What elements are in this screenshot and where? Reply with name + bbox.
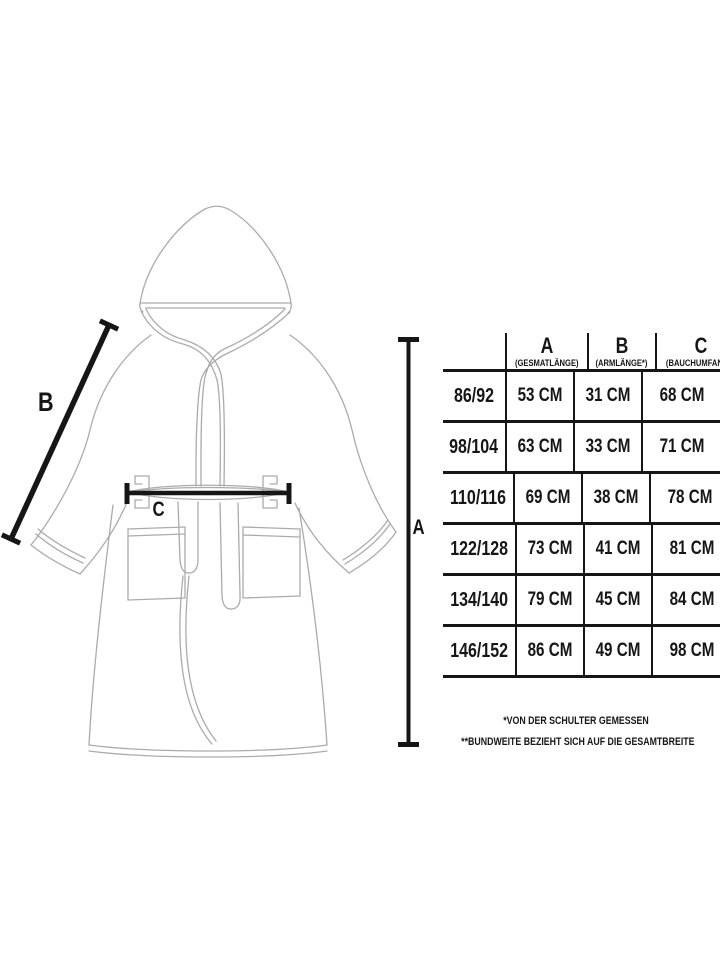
lapel-right-inner: [201, 309, 285, 486]
value-c-text: 68 CM: [659, 385, 704, 407]
size-text: 122/128: [450, 538, 508, 561]
value-a-cell: 86 CM: [517, 627, 585, 675]
footnote-1: *VON DER SCHULTER GEMESSEN: [432, 711, 720, 732]
value-a-text: 73 CM: [528, 538, 573, 560]
value-a-cell: 73 CM: [517, 525, 585, 573]
value-c-text: 71 CM: [659, 436, 704, 458]
value-b-text: 31 CM: [586, 385, 631, 407]
value-c-text: 78 CM: [667, 487, 712, 509]
pocket-left: [128, 527, 185, 600]
column-letter-b: B: [615, 335, 628, 357]
size-cell: 146/152: [443, 627, 517, 675]
dimension-line-b: [2, 321, 118, 543]
size-table: A (GESMATLÄNGE) B (ARMLÄNGE*) C (BAUCHUM…: [443, 333, 720, 678]
sleeve-left-cuff1: [36, 534, 83, 563]
belt-end-right: [220, 503, 240, 609]
column-letter-a: A: [540, 335, 553, 357]
size-text: 134/140: [450, 589, 508, 612]
value-c-cell: 78 CM: [651, 474, 720, 522]
pocket-right: [243, 527, 300, 598]
value-a-cell: 63 CM: [507, 423, 575, 471]
size-column-header: [443, 333, 507, 369]
value-c-text: 98 CM: [669, 640, 714, 662]
value-c-cell: 71 CM: [643, 423, 720, 471]
lapel-right-outer: [196, 312, 290, 486]
hood-outline: [140, 206, 291, 303]
column-subtitle-b: (ARMLÄNGE*): [596, 359, 648, 369]
value-b-cell: 49 CM: [585, 627, 653, 675]
footnotes: *VON DER SCHULTER GEMESSEN **BUNDWEITE B…: [432, 711, 720, 753]
table-row: 86/92 53 CM 31 CM 68 CM: [443, 372, 720, 423]
body-right-edge: [299, 508, 327, 745]
sleeve-left-end: [31, 545, 80, 574]
hem-outer: [89, 751, 327, 757]
value-c-cell: 81 CM: [653, 525, 720, 573]
value-b-text: 41 CM: [596, 538, 641, 560]
value-b-cell: 45 CM: [585, 576, 653, 624]
value-b-cell: 41 CM: [585, 525, 653, 573]
column-header-b: B (ARMLÄNGE*): [589, 333, 657, 369]
dimension-label-c: C: [151, 499, 166, 520]
sleeve-right-cuff1: [345, 524, 390, 564]
table-row: 146/152 86 CM 49 CM 98 CM: [443, 627, 720, 678]
table-header-row: A (GESMATLÄNGE) B (ARMLÄNGE*) C (BAUCHUM…: [443, 333, 720, 372]
dimension-label-c-text: C: [153, 499, 165, 520]
lapel-left-inner: [146, 309, 224, 486]
column-subtitle-c: (BAUCHUMFANG**): [665, 359, 720, 369]
dimension-label-a-text: A: [413, 517, 425, 538]
footnote-2: **BUNDWEITE BEZIEHT SICH AUF DIE GESAMTB…: [432, 732, 720, 753]
column-header-a: A (GESMATLÄNGE): [507, 333, 589, 369]
dimension-label-b: B: [36, 389, 56, 416]
size-cell: 98/104: [443, 423, 507, 471]
table-row: 98/104 63 CM 33 CM 71 CM: [443, 423, 720, 474]
dimension-line-a: [398, 339, 419, 745]
value-b-cell: 31 CM: [575, 372, 643, 420]
size-cell: 122/128: [443, 525, 517, 573]
dimension-label-b-text: B: [38, 389, 54, 416]
value-a-text: 63 CM: [518, 436, 563, 458]
table-row: 122/128 73 CM 41 CM 81 CM: [443, 525, 720, 576]
value-b-text: 49 CM: [596, 640, 641, 662]
value-c-cell: 98 CM: [653, 627, 720, 675]
body-left-edge: [89, 505, 113, 745]
value-a-text: 53 CM: [518, 385, 563, 407]
value-a-text: 86 CM: [528, 640, 573, 662]
footnote-1-text: *VON DER SCHULTER GEMESSEN: [503, 711, 649, 732]
size-text: 110/116: [450, 487, 506, 510]
front-overlap-outer: [180, 576, 212, 744]
sleeve-left-under: [80, 500, 128, 574]
size-cell: 110/116: [443, 474, 515, 522]
belt-end-left: [178, 502, 198, 573]
footnote-2-text: **BUNDWEITE BEZIEHT SICH AUF DIE GESAMTB…: [461, 732, 694, 753]
column-header-c: C (BAUCHUMFANG**): [657, 333, 720, 369]
table-row: 110/116 69 CM 38 CM 78 CM: [443, 474, 720, 525]
column-letter-c: C: [695, 335, 708, 357]
size-text: 86/92: [454, 385, 494, 408]
lapel-left-outer: [141, 311, 220, 486]
value-b-cell: 33 CM: [575, 423, 643, 471]
hem-inner: [89, 745, 327, 751]
sleeve-left-cuff2: [38, 529, 85, 558]
value-a-cell: 79 CM: [517, 576, 585, 624]
value-a-text: 79 CM: [528, 589, 573, 611]
size-text: 146/152: [450, 640, 508, 663]
size-text: 98/104: [450, 436, 499, 459]
front-overlap-inner: [186, 576, 216, 741]
value-b-text: 45 CM: [596, 589, 641, 611]
value-a-cell: 53 CM: [507, 372, 575, 420]
value-c-cell: 68 CM: [643, 372, 720, 420]
value-c-cell: 84 CM: [653, 576, 720, 624]
sleeve-right-outer: [290, 335, 396, 532]
value-c-text: 81 CM: [669, 538, 714, 560]
dimension-lines: [2, 321, 419, 745]
value-c-text: 84 CM: [669, 589, 714, 611]
column-subtitle-a: (GESMATLÄNGE): [515, 359, 579, 369]
size-cell: 86/92: [443, 372, 507, 420]
dimension-label-a: A: [411, 517, 426, 538]
sleeve-right-cuff2: [343, 520, 388, 560]
robe-outline: [31, 206, 396, 757]
value-b-cell: 38 CM: [583, 474, 651, 522]
size-chart-page: { "labels": { "a": "A", "b": "B", "c": "…: [0, 0, 720, 960]
size-cell: 134/140: [443, 576, 517, 624]
value-a-text: 69 CM: [526, 487, 571, 509]
value-a-cell: 69 CM: [515, 474, 583, 522]
table-row: 134/140 79 CM 45 CM 84 CM: [443, 576, 720, 627]
value-b-text: 33 CM: [586, 436, 631, 458]
value-b-text: 38 CM: [594, 487, 639, 509]
